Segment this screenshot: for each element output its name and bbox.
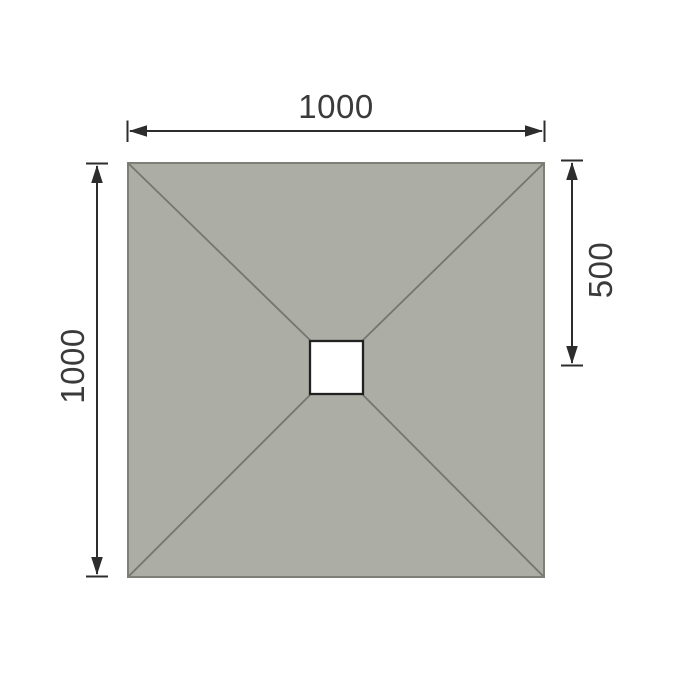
arrowhead-down-icon — [566, 346, 578, 364]
drain-square — [310, 341, 363, 394]
arrowhead-down-icon — [91, 557, 103, 575]
arrowhead-left-icon — [129, 125, 147, 137]
dimension-label-left-height: 1000 — [54, 328, 91, 403]
dimension-top-width: 1000 — [128, 88, 545, 142]
arrowhead-up-icon — [91, 165, 103, 183]
dimension-label-top-width: 1000 — [298, 88, 373, 125]
diagram-canvas: 1000 1000 500 — [0, 0, 675, 675]
dimension-label-right-drain-offset: 500 — [582, 242, 619, 299]
dimension-right-drain-offset: 500 — [561, 161, 619, 366]
arrowhead-up-icon — [566, 162, 578, 180]
dimension-left-height: 1000 — [54, 164, 108, 577]
shower-tray-plan-diagram: 1000 1000 500 — [0, 0, 675, 675]
arrowhead-right-icon — [525, 125, 543, 137]
